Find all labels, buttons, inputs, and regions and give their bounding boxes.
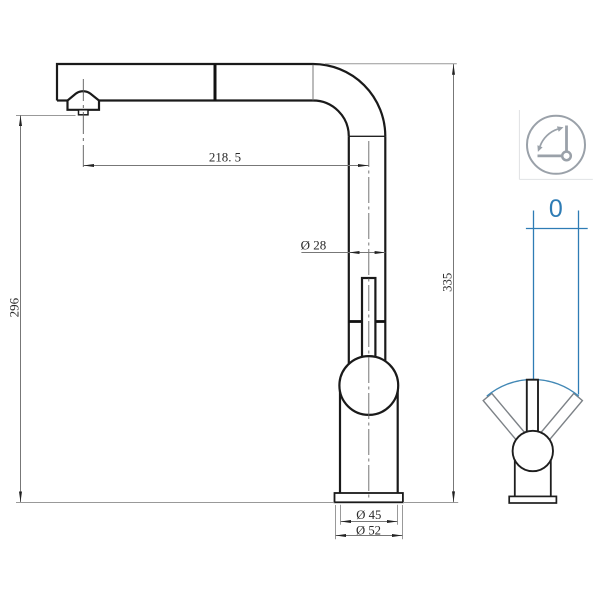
svg-text:296: 296 bbox=[7, 297, 22, 317]
svg-text:0: 0 bbox=[549, 195, 563, 223]
svg-text:335: 335 bbox=[440, 273, 454, 292]
svg-text:Ø 28: Ø 28 bbox=[301, 237, 327, 252]
svg-text:Ø 52: Ø 52 bbox=[356, 524, 381, 538]
svg-text:Ø 45: Ø 45 bbox=[356, 508, 381, 522]
svg-text:218. 5: 218. 5 bbox=[209, 150, 241, 164]
